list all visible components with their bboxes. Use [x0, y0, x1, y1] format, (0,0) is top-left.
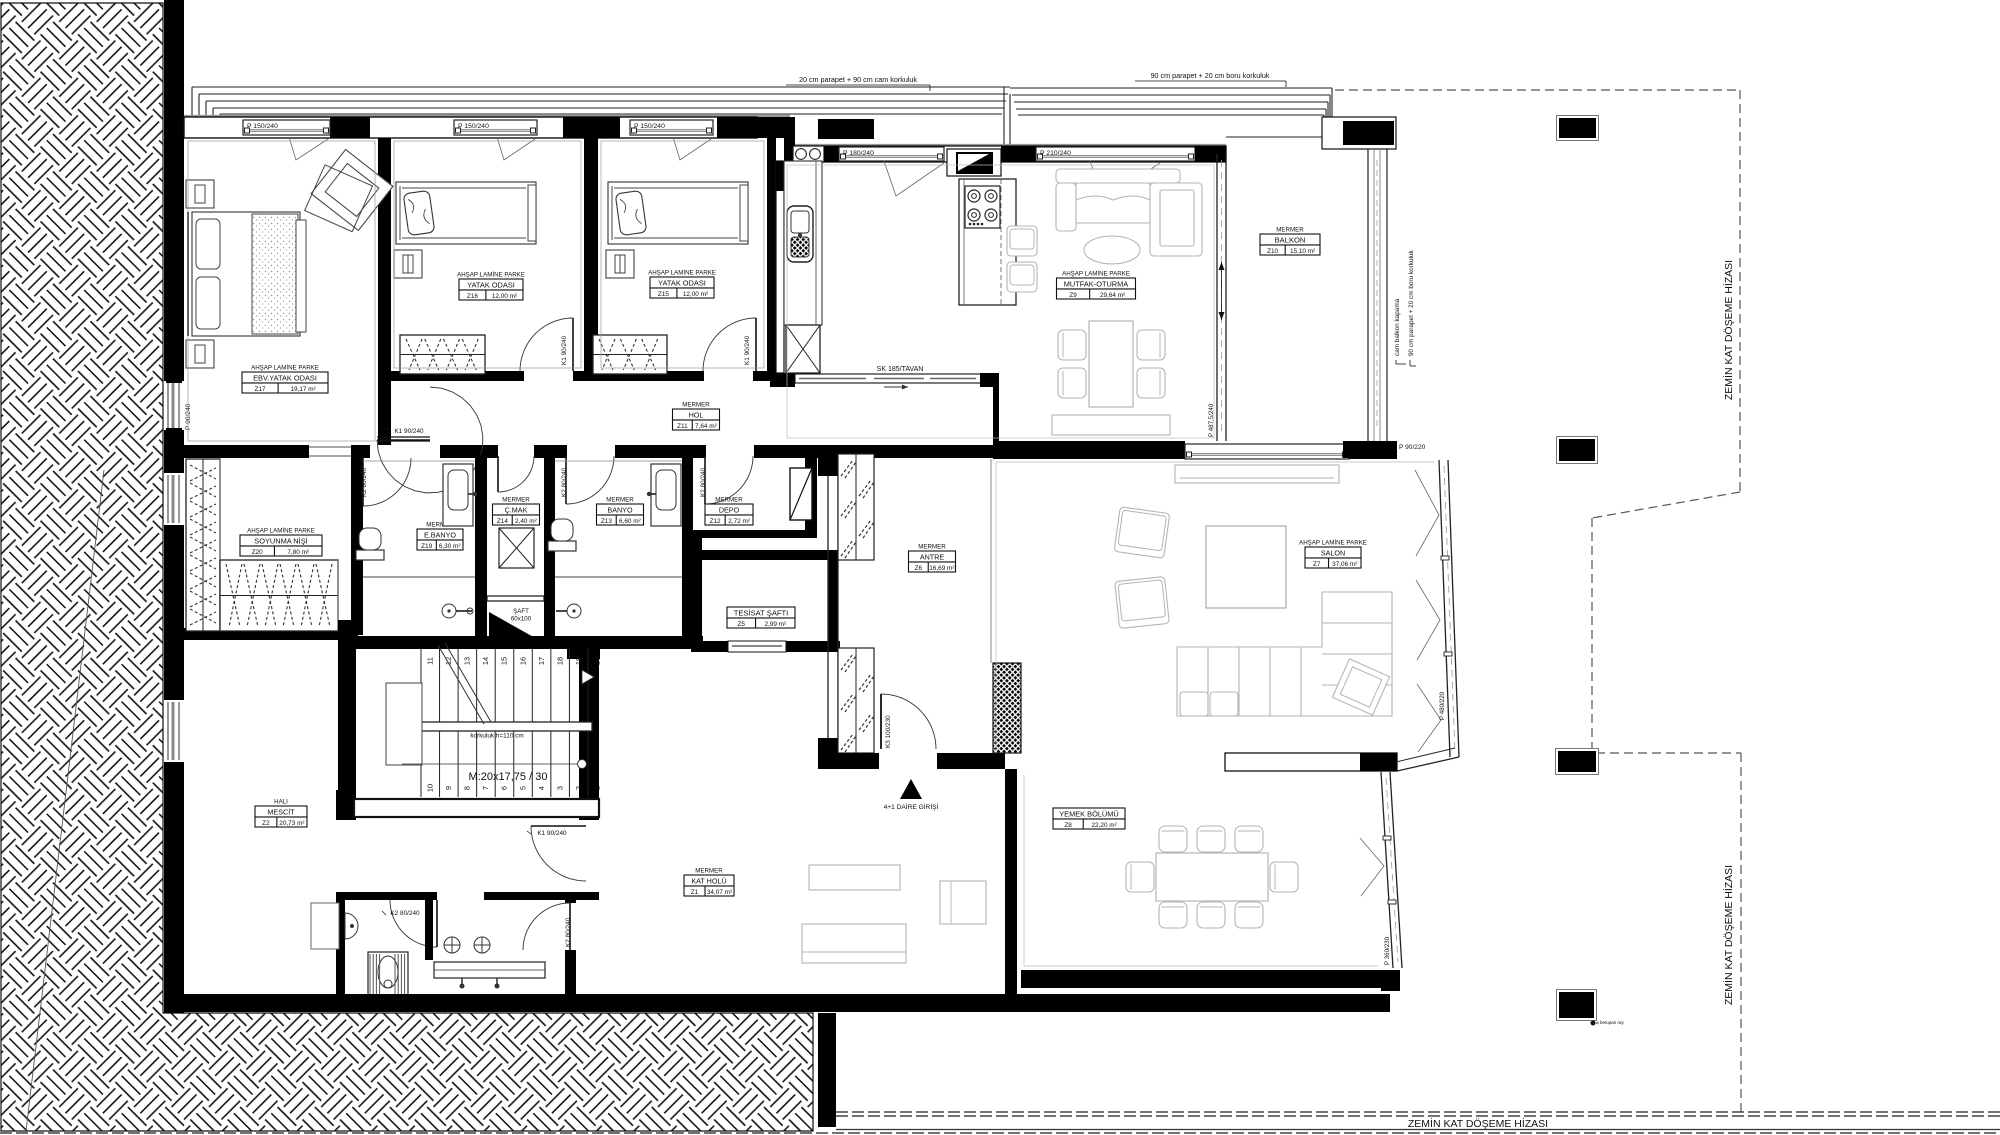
svg-text:Z6: Z6	[915, 565, 923, 572]
svg-text:korkuluk h=110 cm: korkuluk h=110 cm	[470, 733, 523, 740]
svg-text:4: 4	[537, 786, 546, 790]
svg-text:Z8: Z8	[1064, 822, 1072, 829]
svg-text:K1 90/240: K1 90/240	[394, 428, 424, 435]
svg-text:E.BANYO: E.BANYO	[424, 531, 456, 540]
svg-text:6: 6	[500, 786, 509, 790]
svg-text:90 cm parapet + 20 cm boru kor: 90 cm parapet + 20 cm boru korkuluk	[1408, 250, 1415, 356]
svg-text:P 150/240: P 150/240	[458, 123, 489, 130]
svg-text:YATAK ODASI: YATAK ODASI	[658, 279, 706, 288]
svg-text:16: 16	[518, 657, 527, 665]
svg-text:19: 19	[574, 657, 583, 665]
svg-text:Z1: Z1	[691, 889, 699, 896]
svg-text:MERMER: MERMER	[918, 544, 946, 551]
svg-text:Z12: Z12	[710, 518, 721, 525]
svg-text:34,07 m²: 34,07 m²	[707, 889, 732, 896]
svg-text:29,64 m²: 29,64 m²	[1100, 292, 1125, 299]
svg-text:5: 5	[518, 786, 527, 790]
svg-text:BANYO: BANYO	[607, 506, 633, 515]
svg-text:K1 90/240: K1 90/240	[537, 830, 567, 837]
svg-text:11: 11	[426, 657, 435, 665]
svg-text:4+1 DAİRE GİRİŞİ: 4+1 DAİRE GİRİŞİ	[884, 802, 939, 811]
svg-text:SOYUNMA NİŞİ: SOYUNMA NİŞİ	[254, 537, 307, 546]
svg-text:15: 15	[500, 657, 509, 665]
svg-text:Z16: Z16	[467, 293, 478, 300]
svg-text:TESİSAT ŞAFTI: TESİSAT ŞAFTI	[734, 609, 789, 618]
svg-text:7: 7	[481, 786, 490, 790]
svg-text:2,72 m²: 2,72 m²	[728, 518, 750, 525]
svg-text:Z14: Z14	[497, 518, 508, 525]
svg-text:AHŞAP LAMİNE PARKE: AHŞAP LAMİNE PARKE	[457, 272, 525, 279]
svg-text:K2 80/240: K2 80/240	[561, 467, 568, 497]
svg-text:ZEMİN KAT DÖŞEME HİZASI: ZEMİN KAT DÖŞEME HİZASI	[1722, 865, 1735, 1005]
svg-text:ZEMİN KAT DÖŞEME HİZASI: ZEMİN KAT DÖŞEME HİZASI	[1722, 260, 1735, 400]
svg-text:BALKON: BALKON	[1275, 236, 1306, 245]
svg-text:22,20 m²: 22,20 m²	[1092, 822, 1117, 829]
svg-text:Ç.MAK: Ç.MAK	[505, 506, 528, 515]
svg-text:19,17 m²: 19,17 m²	[290, 386, 315, 393]
svg-text:20,73 m²: 20,73 m²	[279, 820, 304, 827]
svg-text:1: 1	[592, 786, 601, 790]
svg-text:EBV.YATAK ODASI: EBV.YATAK ODASI	[253, 374, 317, 383]
svg-text:K2 80/240: K2 80/240	[390, 910, 420, 917]
svg-text:AHŞAP LAMİNE PARKE: AHŞAP LAMİNE PARKE	[648, 270, 716, 277]
svg-text:AHŞAP LAMİNE PARKE: AHŞAP LAMİNE PARKE	[1299, 540, 1367, 547]
svg-text:P 180/240: P 180/240	[843, 150, 874, 157]
svg-text:20: 20	[592, 657, 601, 665]
svg-text:Z15: Z15	[658, 291, 669, 298]
svg-text:KAT HOLÜ: KAT HOLÜ	[691, 877, 726, 886]
svg-text:M:20x17,75 / 30: M:20x17,75 / 30	[469, 771, 548, 783]
svg-text:ANTRE: ANTRE	[920, 553, 945, 562]
svg-text:AHŞAP LAMİNE PARKE: AHŞAP LAMİNE PARKE	[1062, 271, 1130, 278]
svg-text:⌀ betopan ray: ⌀ betopan ray	[1596, 1020, 1624, 1025]
svg-text:2,40 m²: 2,40 m²	[515, 518, 537, 525]
svg-text:K1 90/240: K1 90/240	[561, 335, 568, 365]
svg-text:60x100: 60x100	[511, 616, 532, 623]
svg-text:K2 80/240: K2 80/240	[565, 917, 572, 947]
svg-text:K2 80/240: K2 80/240	[700, 467, 707, 497]
svg-text:Z9: Z9	[1069, 292, 1077, 299]
svg-text:12,00 m²: 12,00 m²	[492, 293, 517, 300]
svg-text:Z19: Z19	[421, 543, 432, 550]
svg-text:YATAK ODASI: YATAK ODASI	[467, 281, 515, 290]
svg-text:SK 185/TAVAN: SK 185/TAVAN	[877, 366, 924, 373]
svg-text:DEPO: DEPO	[719, 506, 740, 515]
svg-text:Z13: Z13	[601, 518, 612, 525]
svg-text:Z17: Z17	[255, 386, 266, 393]
svg-text:Z10: Z10	[1267, 248, 1278, 255]
svg-text:cam balkon kapama: cam balkon kapama	[1394, 298, 1401, 356]
svg-text:20 cm parapet + 90 cm cam kork: 20 cm parapet + 90 cm cam korkuluk	[799, 75, 917, 84]
svg-text:P 90/240: P 90/240	[185, 403, 192, 430]
svg-text:6,60 m²: 6,60 m²	[619, 518, 641, 525]
svg-text:3: 3	[555, 786, 564, 790]
svg-text:MERMER: MERMER	[1276, 227, 1304, 234]
svg-text:7,80 m²: 7,80 m²	[287, 549, 309, 556]
svg-text:YEMEK BÖLÜMÜ: YEMEK BÖLÜMÜ	[1059, 810, 1119, 819]
svg-text:AHŞAP LAMİNE PARKE: AHŞAP LAMİNE PARKE	[251, 365, 319, 372]
svg-text:Z2: Z2	[262, 820, 270, 827]
svg-text:Z11: Z11	[677, 423, 688, 430]
svg-text:K2 80/240: K2 80/240	[361, 467, 368, 497]
svg-text:K1 90/240: K1 90/240	[744, 335, 751, 365]
svg-text:P 90/220: P 90/220	[1399, 444, 1426, 451]
svg-text:Z5: Z5	[738, 621, 746, 628]
svg-text:90 cm parapet + 20 cm boru kor: 90 cm parapet + 20 cm boru korkuluk	[1151, 71, 1270, 80]
svg-text:6,30 m²: 6,30 m²	[439, 543, 461, 550]
svg-text:P 480/220: P 480/220	[1439, 691, 1446, 720]
svg-text:ZEMİN KAT DÖŞEME HİZASI: ZEMİN KAT DÖŞEME HİZASI	[1408, 1117, 1548, 1130]
svg-text:ŞAFT: ŞAFT	[513, 608, 529, 615]
svg-text:10: 10	[426, 784, 435, 792]
svg-text:AHŞAP LAMİNE PARKE: AHŞAP LAMİNE PARKE	[247, 528, 315, 535]
svg-text:P 150/240: P 150/240	[247, 123, 278, 130]
svg-text:15,10 m²: 15,10 m²	[1290, 248, 1315, 255]
svg-text:P 210/240: P 210/240	[1040, 150, 1071, 157]
svg-text:MERMER: MERMER	[682, 402, 710, 409]
svg-text:18: 18	[555, 657, 564, 665]
svg-text:Z7: Z7	[1313, 561, 1321, 568]
svg-text:HALI: HALI	[274, 799, 288, 806]
svg-text:37,06 m²: 37,06 m²	[1332, 561, 1357, 568]
svg-text:K3 100/230: K3 100/230	[885, 715, 892, 748]
svg-text:P 360/230: P 360/230	[1384, 936, 1391, 965]
svg-text:8: 8	[463, 786, 472, 790]
svg-text:MESCİT: MESCİT	[267, 808, 295, 817]
svg-text:MERMER: MERMER	[715, 497, 743, 504]
svg-text:7,64 m²: 7,64 m²	[695, 423, 717, 430]
svg-text:9: 9	[444, 786, 453, 790]
svg-text:13: 13	[463, 657, 472, 665]
svg-text:HOL: HOL	[689, 411, 704, 420]
svg-text:Z20: Z20	[252, 549, 263, 556]
svg-text:14: 14	[481, 657, 490, 665]
svg-text:17: 17	[537, 657, 546, 665]
svg-text:2,99 m²: 2,99 m²	[764, 621, 786, 628]
svg-text:SALON: SALON	[1321, 549, 1345, 558]
svg-text:2: 2	[574, 786, 583, 790]
svg-text:MERMER: MERMER	[502, 497, 530, 504]
svg-text:MERMER: MERMER	[695, 868, 723, 875]
svg-text:MUTFAK-OTURMA: MUTFAK-OTURMA	[1064, 280, 1129, 289]
svg-text:P 150/240: P 150/240	[634, 123, 665, 130]
svg-text:12,00 m²: 12,00 m²	[683, 291, 708, 298]
svg-text:MERMER: MERMER	[606, 497, 634, 504]
svg-text:16,69 m²: 16,69 m²	[929, 565, 954, 572]
